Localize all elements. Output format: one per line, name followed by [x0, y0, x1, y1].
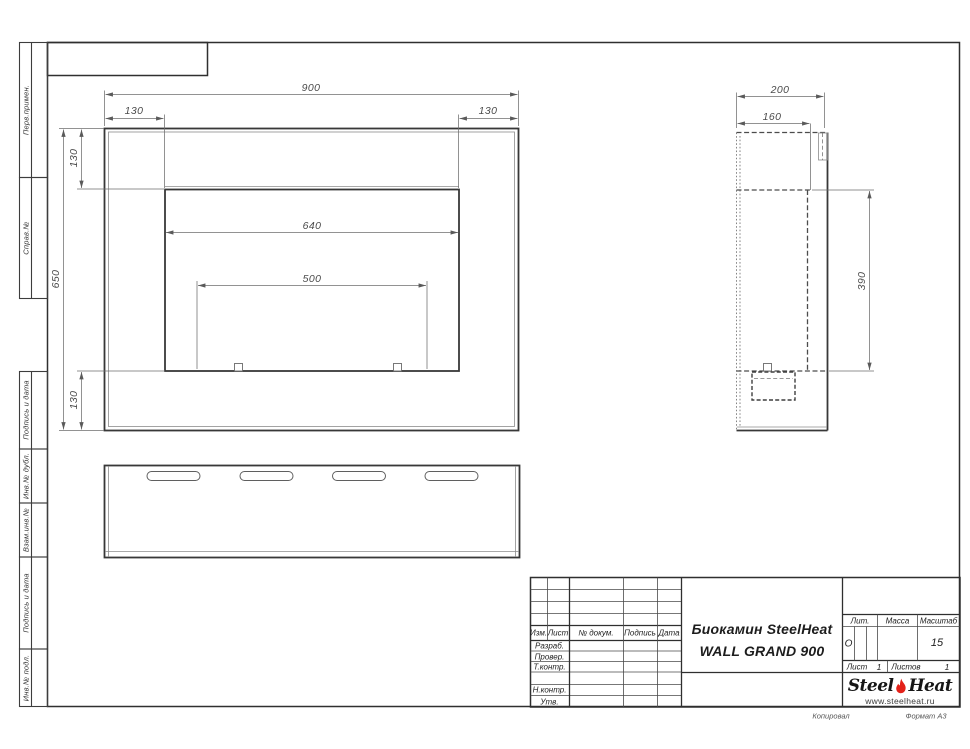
titleblock-lit-value: О — [845, 638, 853, 649]
footer-format-label: Формат А3 — [905, 712, 946, 721]
product-name-line1: Биокамин SteelHeat — [692, 621, 833, 637]
margin-label-perv-primen: Перв.примен. — [22, 85, 31, 135]
titleblock-mass-label: Масса — [886, 616, 910, 625]
margin-label-sprav-no: Справ.№ — [22, 221, 31, 254]
titleblock-col-date: Дата — [658, 629, 679, 638]
titleblock-col-list: Лист — [548, 629, 569, 638]
bottom-view — [105, 466, 520, 558]
dim-opening-width: 640 — [303, 220, 322, 232]
margin-label-inv-podl: Инв.№ подл. — [22, 655, 31, 702]
logo-url: www.steelheat.ru — [865, 696, 935, 706]
dim-side-inner-height: 390 — [856, 272, 868, 291]
dim-side-depth: 200 — [771, 84, 790, 96]
titleblock-scale-label: Масштаб — [920, 616, 957, 625]
dim-front-flange-bottom: 130 — [68, 391, 80, 410]
dim-front-height: 650 — [50, 270, 62, 289]
dim-front-width: 900 — [302, 82, 321, 94]
titleblock-row-tkontr: Т.контр. — [533, 663, 565, 672]
footer-copied-label: Копировал — [812, 712, 849, 721]
dim-front-flange-top: 130 — [68, 149, 80, 168]
steelheat-logo: Steel Heat — [848, 676, 952, 696]
margin-label-podpis-data-2: Подпись и дата — [22, 573, 31, 633]
titleblock-sheet-value: 1 — [877, 662, 882, 672]
titleblock-lit-label: Лит. — [851, 616, 870, 625]
titleblock-row-razrab: Разраб. — [535, 642, 564, 651]
titleblock-sheet-label: Лист — [847, 662, 868, 671]
titleblock-col-sign: Подпись — [624, 629, 656, 638]
logo-text-heat: Heat — [908, 676, 952, 696]
titleblock-row-prover: Провер. — [535, 652, 565, 661]
drawing-sheet: Перв.примен. Справ.№ Подпись и дата Инв.… — [0, 0, 970, 749]
titleblock-sheets-label: Листов — [891, 662, 920, 671]
titleblock-scale-value: 15 — [931, 637, 943, 649]
titleblock-row-utv: Утв. — [540, 697, 558, 706]
dim-front-flange-right: 130 — [479, 105, 498, 117]
dim-front-flange-left: 130 — [125, 105, 144, 117]
product-name-line2: WALL GRAND 900 — [700, 643, 825, 659]
dim-burner-width: 500 — [303, 273, 322, 285]
titleblock-col-doc: № докум. — [578, 629, 613, 638]
titleblock-sheets-value: 1 — [945, 662, 950, 672]
margin-label-inv-dubl: Инв.№ дубл. — [22, 453, 31, 499]
front-view — [59, 91, 519, 431]
margin-label-vzam-inv: Взам.инв.№ — [22, 508, 31, 552]
titleblock-col-izm: Изм. — [530, 629, 547, 638]
flame-icon — [894, 678, 907, 695]
titleblock-row-nkontr: Н.контр. — [533, 686, 567, 695]
dim-side-inner-depth: 160 — [763, 111, 782, 123]
margin-label-podpis-data-1: Подпись и дата — [22, 380, 31, 440]
logo-text-steel: Steel — [848, 676, 894, 696]
side-view — [737, 93, 875, 431]
